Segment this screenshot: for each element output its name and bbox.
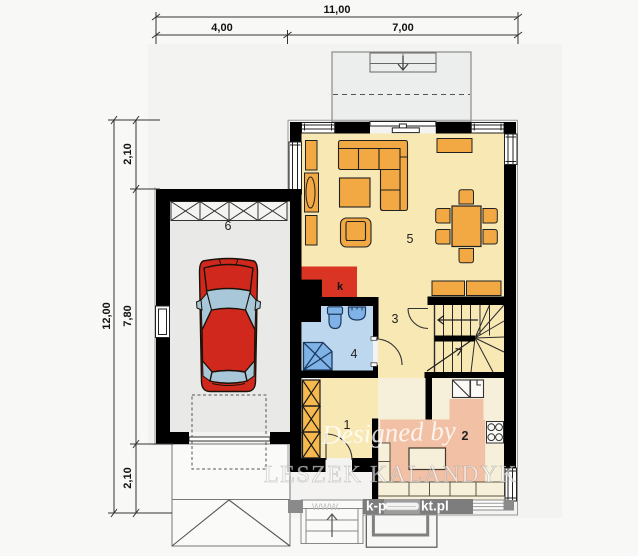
svg-text:k: k: [337, 281, 344, 293]
svg-text:LESZEK KALANDYK: LESZEK KALANDYK: [264, 462, 518, 488]
svg-text:4,00: 4,00: [211, 22, 232, 34]
svg-text:3: 3: [392, 312, 399, 326]
svg-text:4: 4: [351, 347, 358, 361]
svg-text:www.: www.: [311, 499, 341, 513]
svg-text:2,10: 2,10: [122, 467, 134, 488]
svg-text:2,10: 2,10: [122, 143, 134, 164]
svg-text:7,00: 7,00: [392, 22, 413, 34]
svg-text:11,00: 11,00: [324, 4, 351, 16]
svg-text:7,80: 7,80: [122, 305, 134, 326]
svg-text:12,00: 12,00: [101, 302, 113, 330]
svg-text:k-p: k-p: [366, 499, 386, 514]
svg-text:6: 6: [225, 219, 232, 233]
svg-text:2: 2: [462, 429, 469, 443]
svg-text:kt.pl: kt.pl: [421, 499, 449, 514]
svg-text:Designed by: Designed by: [320, 415, 456, 450]
svg-text:5: 5: [407, 232, 414, 246]
